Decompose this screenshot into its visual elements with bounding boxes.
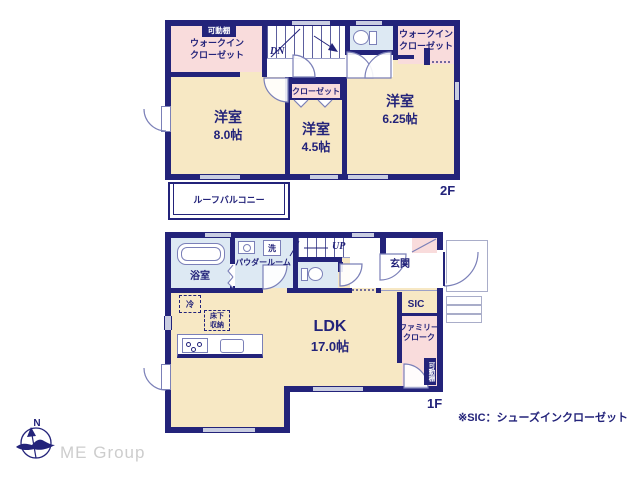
room-45-label: 洋室: [302, 120, 330, 138]
room-625-label: 洋室: [386, 92, 414, 110]
door-arc: [293, 55, 315, 77]
door-arc: [264, 78, 288, 102]
roof-balcony-label: ルーフバルコニー: [193, 195, 264, 207]
fridge-label: 冷: [186, 300, 194, 310]
room-8-label: 洋室: [214, 108, 242, 126]
walkin-closet-left-label: ウォークイン クローゼット: [190, 38, 244, 61]
powder-room-label: パウダールーム: [235, 258, 291, 268]
door-arc: [144, 368, 166, 390]
family-closet-label: ファミリー クローク: [399, 323, 439, 344]
floor1-tag: 1F: [427, 396, 442, 411]
door-arc: [365, 52, 391, 78]
room-625-size: 6.25帖: [382, 112, 417, 128]
room-8-size: 8.0帖: [214, 128, 243, 144]
closet-label: クローゼット: [292, 87, 340, 97]
ldk-label: LDK: [314, 317, 347, 338]
walkin-closet-right-label: ウォークイン クローゼット: [399, 29, 453, 52]
movable-shelf-label: 可動棚: [424, 358, 436, 385]
folding-door-mark: [228, 265, 233, 277]
entrance-door-arc: [444, 252, 478, 286]
floorplan: N 可動棚 ウォークイン クローゼット DN ウォークイン クローゼット 洋室 …: [0, 0, 640, 480]
entrance-label: 玄関: [390, 258, 410, 271]
compass-north-label: N: [33, 418, 40, 429]
stair-arrowhead: [328, 43, 338, 52]
linework-overlay: N: [0, 0, 640, 480]
folding-door-mark: [228, 277, 233, 288]
sic-note: ※SIC：シューズインクローゼット: [458, 409, 628, 425]
folding-door-mark: [318, 100, 332, 107]
brand-logo-text: ME Group: [60, 443, 145, 463]
underfloor-storage-label: 床下 収納: [210, 312, 224, 330]
ldk-size: 17.0帖: [311, 339, 349, 356]
compass-bird-shape: [16, 440, 55, 450]
folding-door-mark: [294, 100, 308, 107]
compass-icon: N: [16, 418, 55, 458]
stair-line: [290, 241, 299, 256]
shoe-box-line: [412, 239, 436, 252]
door-arc: [340, 264, 362, 286]
sic-label: SIC: [408, 298, 425, 311]
room-45-size: 4.5帖: [302, 140, 331, 156]
floor2-tag: 2F: [440, 183, 455, 198]
movable-shelf-label: 可動棚: [202, 25, 236, 37]
door-arc: [144, 109, 166, 131]
bathroom-label: 浴室: [190, 270, 210, 283]
door-arc: [263, 265, 287, 289]
laundry-label: 洗: [268, 244, 276, 254]
stairs-up-label: UP: [332, 241, 345, 252]
stairs-down-label: DN: [270, 46, 284, 57]
